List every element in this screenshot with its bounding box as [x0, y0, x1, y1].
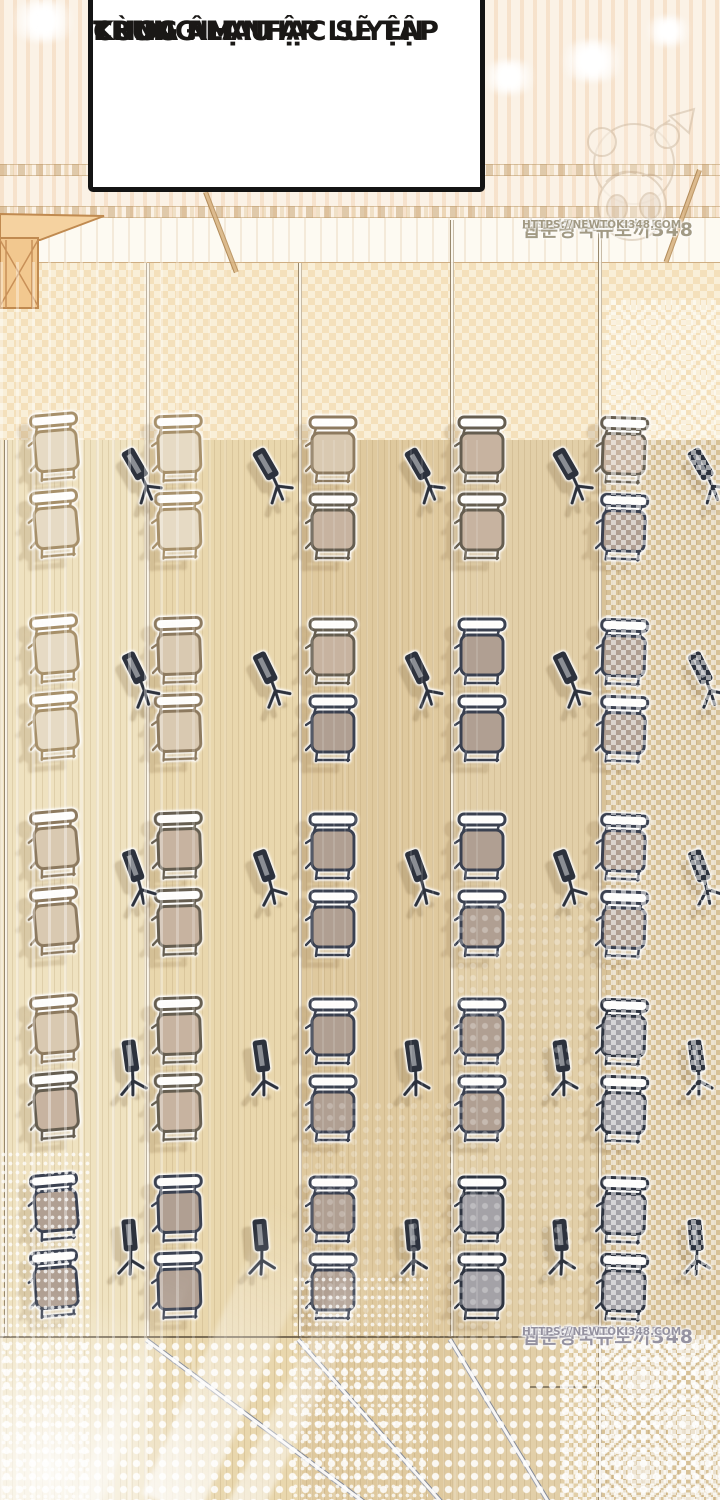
step-edge [530, 1386, 602, 1388]
speech-text-line: CÙNG NHAU [93, 11, 272, 53]
watermark-url: HTTPS://NEWTOKI348.COM [522, 219, 681, 232]
corner-platform [0, 210, 112, 314]
tier-edge-line [298, 263, 302, 1338]
tier-edge-line [450, 220, 454, 1338]
webtoon-panel: 가장 빠른 웹툰제공사이트 웹툰왕국뉴토끼348 HTTPS://NEWTOKI… [0, 0, 720, 1500]
ceiling-light [6, 0, 80, 42]
speech-bubble: KHOA ÂM NHẠC SẼ TẬP TRUNG LẠI TẬP LUYỆN … [88, 0, 485, 192]
ceiling-light [478, 60, 540, 94]
watermark-url: HTTPS://NEWTOKI348.COM [522, 1326, 681, 1339]
ceiling-light [642, 16, 694, 46]
tier-edge-line [4, 440, 8, 1338]
ceiling-light [556, 40, 628, 82]
floor-section [300, 440, 452, 1500]
floor-section [0, 440, 148, 1500]
platform-front-edge [0, 1336, 612, 1338]
floor-section [148, 440, 300, 1500]
